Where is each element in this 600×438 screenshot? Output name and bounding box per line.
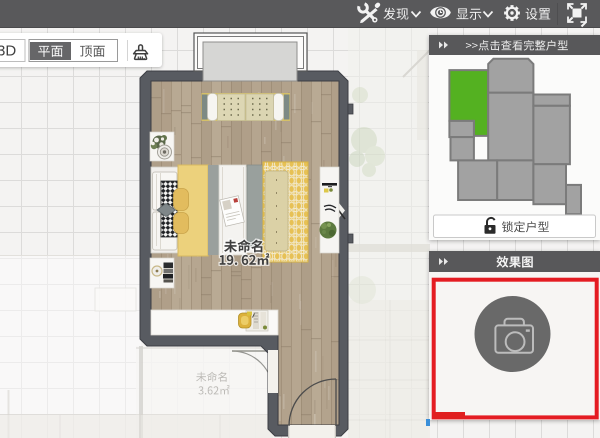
- svg-text:3D: 3D: [0, 43, 16, 60]
